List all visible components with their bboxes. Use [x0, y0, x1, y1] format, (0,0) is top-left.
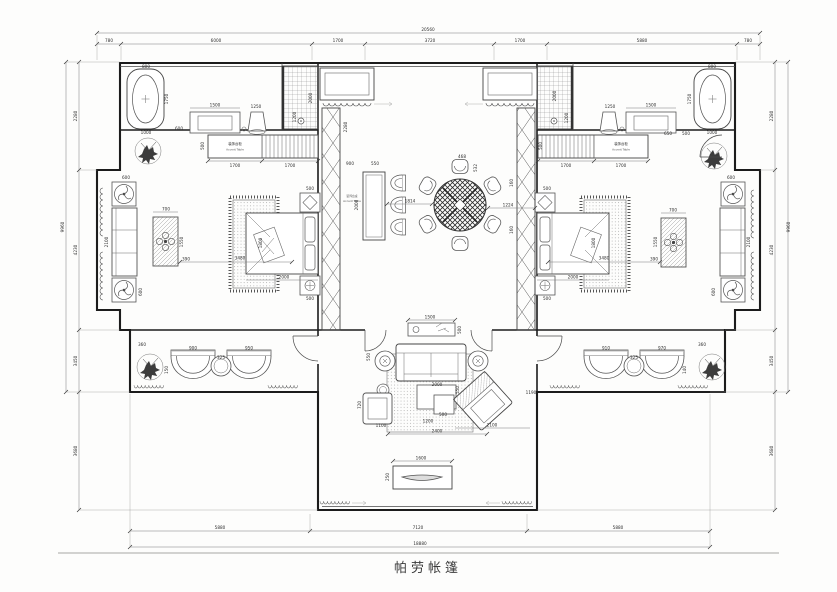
dim-label: 500	[439, 412, 447, 417]
dim-label: 7120	[413, 525, 424, 530]
dim-label: 1700	[230, 163, 241, 168]
pillow	[540, 245, 550, 270]
dim-label: 600	[122, 175, 130, 180]
dim-label: 4230	[769, 244, 774, 255]
dim-label: 500	[306, 186, 314, 191]
dim-label: 600	[711, 288, 716, 296]
tub-chair	[227, 350, 271, 379]
dim-label: 468	[458, 154, 466, 159]
dim-label: 970	[658, 346, 666, 351]
dim-label: 1800	[258, 237, 263, 248]
dim-label: 5880	[613, 525, 624, 530]
dim-label: 1224	[503, 203, 514, 208]
curtain-icon	[100, 188, 103, 236]
dim-label: 600	[175, 126, 183, 131]
dim-label: 2000	[308, 92, 313, 103]
cabinet-label-en: Accent Table	[612, 148, 630, 152]
cabinet-label-cn: 装饰台柜	[228, 141, 242, 146]
fan-plant-icon	[724, 281, 743, 300]
tub-chair	[584, 350, 628, 379]
dim-label: 1500	[425, 315, 436, 320]
dim-label: 550	[455, 386, 460, 394]
dim-label: 500	[200, 142, 205, 150]
dim-label: 2100	[746, 236, 751, 247]
curtain-icon	[320, 501, 350, 504]
dim-label: 600	[138, 288, 143, 296]
dim-label: 800	[708, 64, 716, 69]
curtain-icon	[550, 385, 580, 388]
dim-label: 390	[650, 257, 658, 262]
dim-label: 532	[473, 164, 478, 172]
dim-label: 5880	[637, 38, 648, 43]
dim-label: 3450	[769, 355, 774, 366]
right-terrace: 910 325 970 360 140	[537, 336, 725, 388]
dim-label: 3450	[73, 355, 78, 366]
dining-area: 装饰台桌 Accent Table	[343, 160, 502, 251]
dim-label: 160	[509, 179, 514, 187]
curtain-icon	[486, 103, 534, 106]
curtain-icon	[323, 103, 371, 106]
fan-plant-icon	[115, 281, 134, 300]
plant-icon	[699, 354, 725, 380]
dim-label: 2100	[487, 423, 498, 428]
dim-label: 1700	[333, 38, 344, 43]
dim-label: 4230	[73, 244, 78, 255]
curtain-icon	[751, 190, 754, 238]
dim-label: 500	[543, 296, 551, 301]
plant-icon	[137, 354, 163, 380]
plant-icon	[701, 143, 727, 169]
dim-label: 700	[162, 207, 170, 212]
dim-label: 2000	[552, 90, 557, 101]
dim-label: 950	[245, 346, 253, 351]
console-label-cn: 装饰台桌	[346, 194, 357, 198]
dim-label: 1700	[515, 38, 526, 43]
dim-label: 500	[457, 326, 462, 334]
dim-label: 1200	[423, 419, 434, 424]
dim-label: 2000	[279, 275, 290, 280]
wardrobe-sliding	[517, 108, 535, 330]
left-balcony: 600 2100 600 700 1550	[100, 175, 184, 302]
door-swing	[537, 336, 562, 361]
center-terrace: 1600 250	[320, 456, 532, 506]
door-swing	[365, 330, 386, 351]
dining-chair	[452, 237, 468, 251]
dim-label: 250	[385, 473, 390, 481]
dim-label: 500	[538, 142, 543, 150]
bar-stool	[391, 197, 406, 213]
curtain-icon	[502, 501, 532, 504]
dim-label: 3720	[425, 38, 436, 43]
dim-label: 500	[306, 296, 314, 301]
sofa-console	[408, 323, 455, 336]
left-terrace: 360 900 150 325 950	[134, 336, 318, 388]
dim-label: 1750	[687, 93, 692, 104]
dim-label: 800	[142, 64, 150, 69]
dim-label: 1200	[292, 111, 297, 122]
floor-plan-sheet: 20560 780 6000 1700 3720 1700 5880 780 5…	[0, 0, 837, 592]
dining-chair	[452, 160, 468, 174]
title-block: 帕劳帐篷	[58, 553, 779, 576]
dim-label: 2000	[432, 382, 443, 387]
dim-label: 2000	[354, 199, 359, 210]
dim-label: 3480	[599, 256, 610, 261]
dim-label: 5880	[215, 525, 226, 530]
dim-label: 18880	[413, 541, 427, 546]
stool	[600, 112, 618, 131]
dim-label: 1500	[210, 103, 221, 108]
dim-label: 325	[217, 355, 225, 360]
dim-label: 3480	[235, 256, 246, 261]
door-swing	[471, 330, 492, 351]
dim-label: 1750	[164, 93, 169, 104]
side-table-lamp	[375, 351, 395, 371]
dim-label: 2280	[343, 121, 348, 132]
curtain-icon	[100, 252, 103, 300]
fan-plant-icon	[115, 185, 134, 204]
dim-label: 500	[543, 186, 551, 191]
dim-label: 900	[346, 161, 354, 166]
dim-label: 9960	[60, 221, 65, 232]
dim-label: 1700	[285, 163, 296, 168]
tub-chair	[640, 350, 684, 379]
dim-label: 1800	[591, 237, 596, 248]
dim-label: 2280	[73, 110, 78, 121]
pillow	[305, 217, 315, 242]
dim-label: 650	[664, 131, 672, 136]
tub-chair	[171, 350, 215, 379]
dim-label: 160	[509, 226, 514, 234]
dim-label: 6000	[211, 38, 222, 43]
dim-label: 550	[366, 353, 371, 361]
dim-label: 1700	[616, 163, 627, 168]
drawing-title: 帕劳帐篷	[394, 560, 462, 576]
dim-label: 3680	[73, 445, 78, 456]
dim-label: 780	[744, 38, 752, 43]
dim-label: 1500	[646, 103, 657, 108]
cabinet-label-cn: 装饰台柜	[614, 141, 628, 146]
dim-label: 9960	[786, 221, 791, 232]
dining-chair	[482, 175, 502, 196]
dim-label: 910	[602, 346, 610, 351]
dim-label: 1190	[526, 390, 537, 395]
dining-chair	[482, 214, 502, 235]
armchair	[363, 393, 392, 424]
pillow	[305, 245, 315, 270]
dim-label: 2100	[104, 236, 109, 247]
dim-label: 325	[630, 355, 638, 360]
dim-label: 1600	[416, 456, 427, 461]
center-top-closets: 2280	[320, 68, 537, 132]
dim-label: 360	[698, 342, 706, 347]
dim-label: 2280	[769, 110, 774, 121]
door-swing	[293, 336, 318, 361]
dim-label: 600	[727, 175, 735, 180]
curtain-icon	[134, 385, 164, 388]
dim-label: 2400	[432, 429, 443, 434]
cabinet-label-en: Accent Table	[226, 148, 244, 152]
bar-stool	[391, 219, 406, 235]
right-balcony: 600 2100 600 700 1550	[653, 175, 754, 302]
dim-label: 1550	[179, 236, 184, 247]
pillow	[540, 217, 550, 242]
console-table	[363, 172, 385, 240]
dim-label: 1100	[376, 423, 387, 428]
wardrobe-sliding	[322, 108, 340, 330]
dim-label: 1250	[605, 104, 616, 109]
curtain-icon	[678, 385, 708, 388]
dim-label: 1000	[707, 130, 718, 135]
stool	[248, 112, 266, 131]
dim-label: 1814	[405, 199, 416, 204]
dim-label: 1200	[564, 112, 569, 123]
dining-table	[418, 160, 503, 251]
living-area	[363, 323, 513, 432]
dim-label: 2000	[568, 275, 579, 280]
dim-label: 360	[138, 342, 146, 347]
dim-label: 900	[189, 346, 197, 351]
dining-chair	[418, 214, 438, 235]
dim-label: 150	[164, 366, 169, 374]
dim-label: 3680	[769, 445, 774, 456]
dining-chair	[418, 175, 438, 196]
dim-label: 780	[105, 38, 113, 43]
dim-label: 550	[371, 161, 379, 166]
bar-stool	[391, 175, 406, 191]
dim-label: 1250	[251, 104, 262, 109]
dim-label: 140	[682, 366, 687, 374]
dim-label: 20560	[421, 27, 435, 32]
floor-plan-drawing: 20560 780 6000 1700 3720 1700 5880 780 5…	[0, 0, 837, 592]
right-dresser-cabinet: 装饰台柜 Accent Table	[536, 135, 650, 163]
dim-label: 720	[357, 401, 362, 409]
dim-label: 500	[682, 131, 690, 136]
left-dimension-chain: 9960 2280 4230 3450 3680	[60, 60, 318, 512]
dim-label: 1550	[653, 236, 658, 247]
dim-label: 390	[182, 257, 190, 262]
fan-plant-icon	[724, 185, 743, 204]
curtain-icon	[268, 385, 298, 388]
curtain-icon	[751, 252, 754, 300]
dim-label: 1000	[141, 130, 152, 135]
plant-icon	[135, 138, 161, 164]
left-dresser-cabinet: 装饰台柜 Accent Table	[206, 135, 320, 163]
dim-label: 700	[669, 208, 677, 213]
top-dimension-chain: 20560 780 6000 1700 3720 1700 5880 780	[95, 27, 762, 60]
side-table-lamp	[468, 351, 488, 371]
dim-label: 1700	[561, 163, 572, 168]
